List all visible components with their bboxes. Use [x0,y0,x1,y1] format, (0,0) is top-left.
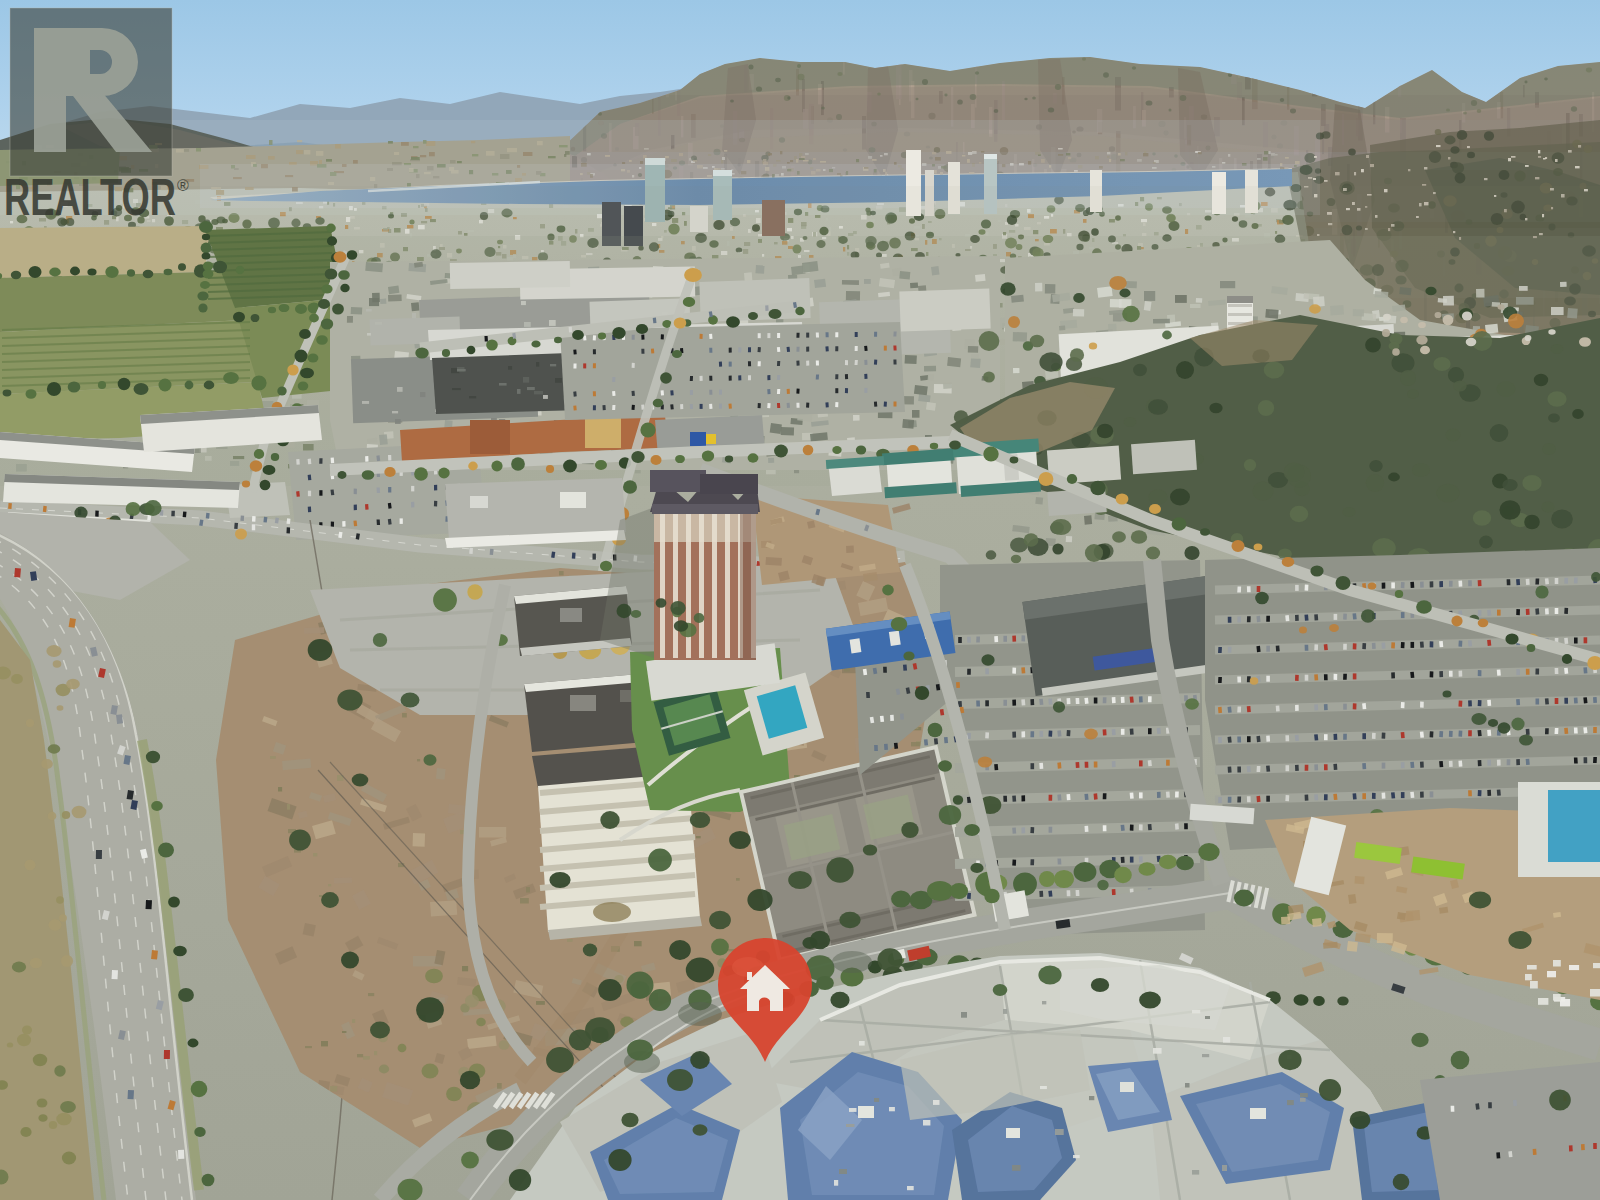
svg-text:®: ® [177,177,189,194]
svg-text:REALTOR: REALTOR [4,168,176,226]
